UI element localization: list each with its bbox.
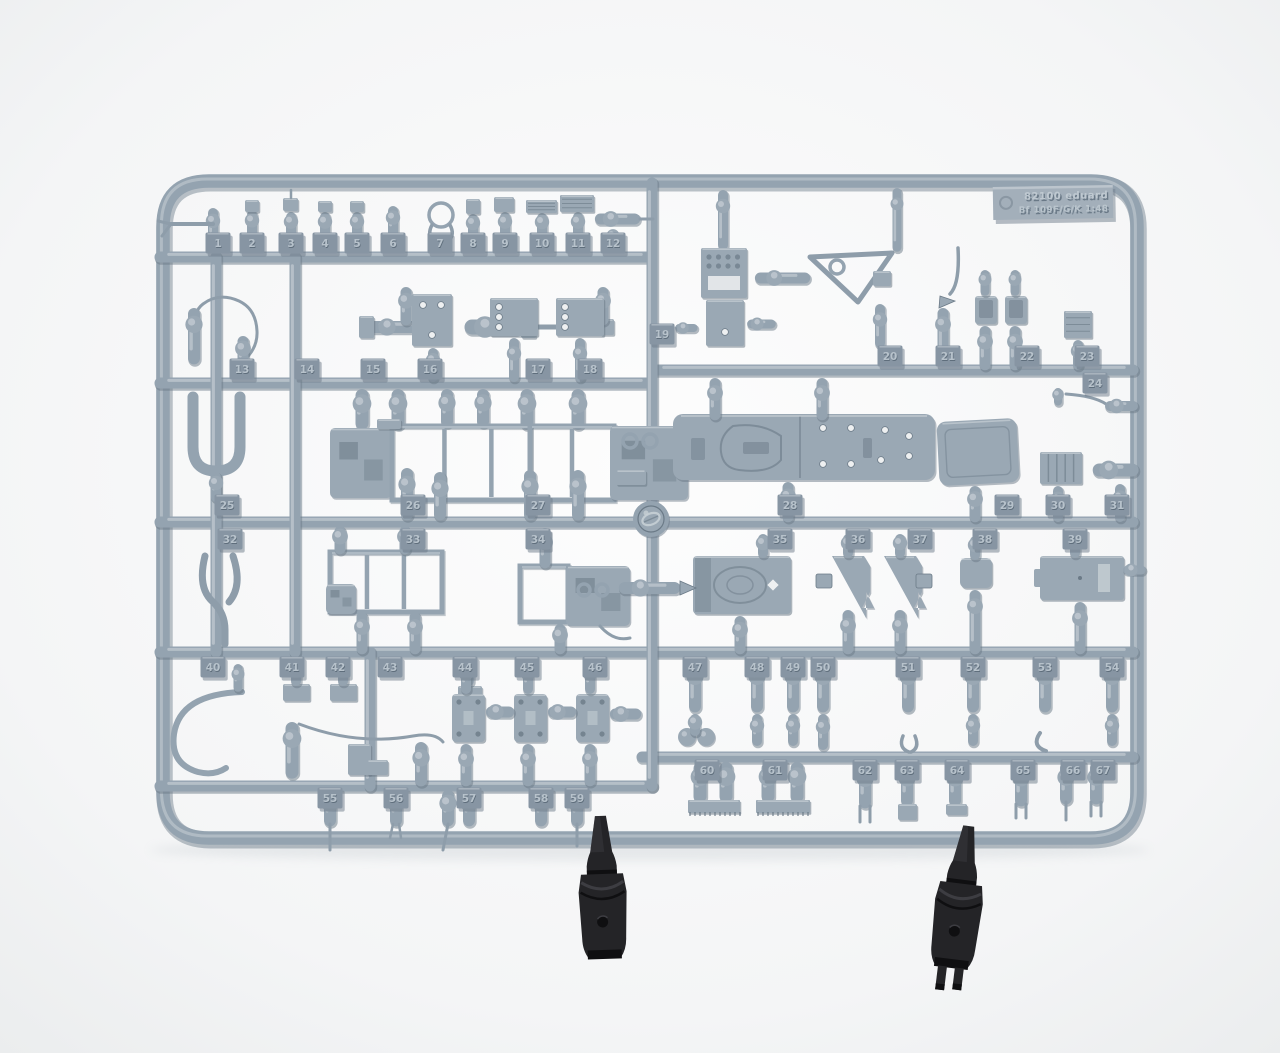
part-number-tab-8: 88 — [461, 233, 488, 257]
part-number: 44 — [458, 662, 473, 674]
part-number-tab-1: 11 — [206, 233, 233, 257]
part-number: 1 — [214, 238, 221, 250]
part-number-tab-34: 3434 — [526, 529, 553, 553]
part-number: 11 — [571, 238, 586, 250]
part-number-tab-56: 5656 — [384, 788, 411, 812]
part-number: 45 — [520, 662, 535, 674]
molded-part — [946, 804, 968, 817]
part-number-tab-45: 4545 — [515, 657, 542, 681]
part-number-tab-42: 4242 — [326, 657, 353, 681]
part-number: 4 — [321, 238, 328, 250]
part-number: 17 — [531, 364, 546, 376]
part-number-tab-35: 3535 — [768, 529, 795, 553]
part-number: 67 — [1096, 765, 1111, 777]
part-number-tab-46: 4646 — [583, 657, 610, 681]
molded-part — [359, 316, 375, 340]
part-number-tab-10: 1010 — [530, 233, 557, 257]
molded-part — [616, 470, 647, 487]
part-number: 34 — [531, 534, 546, 546]
part-number: 42 — [331, 662, 346, 674]
part-number-tab-58: 5858 — [529, 788, 556, 812]
part-number: 9 — [501, 238, 508, 250]
tag-line2: Bf 109F/G/K 1:48 — [1019, 204, 1109, 216]
part-number-tab-57: 5757 — [457, 788, 484, 812]
part-number-tab-39: 3939 — [1063, 529, 1090, 553]
part-number-tab-26: 2626 — [401, 495, 428, 519]
part-number-tab-18: 1818 — [578, 359, 605, 383]
part-number-tab-55: 5555 — [318, 788, 345, 812]
tag-plate: 82100 eduard 82100 eduard Bf 109F/G/K 1:… — [993, 185, 1116, 224]
part-number-tab-65: 6565 — [1011, 760, 1038, 784]
part-number-tab-17: 1717 — [526, 359, 553, 383]
part-number-tab-30: 3030 — [1046, 495, 1073, 519]
part-number: 32 — [223, 534, 238, 546]
part-number: 22 — [1020, 351, 1035, 363]
plate-part — [490, 298, 539, 338]
part-number: 60 — [700, 765, 715, 777]
part-number: 64 — [950, 765, 965, 777]
part-number: 63 — [900, 765, 915, 777]
molded-part — [873, 271, 892, 288]
molded-part — [318, 201, 333, 214]
part-number-tab-36: 3636 — [846, 529, 873, 553]
part-number-tab-15: 1515 — [361, 359, 388, 383]
part-number-tab-21: 2121 — [936, 346, 963, 370]
part-number: 58 — [534, 793, 549, 805]
part-number-tab-66: 6666 — [1061, 760, 1088, 784]
part-number-tab-23: 2323 — [1075, 346, 1102, 370]
part-number-tab-43: 4343 — [378, 657, 405, 681]
molded-part — [245, 200, 260, 214]
part-number-tab-4: 44 — [313, 233, 340, 257]
part-number: 13 — [235, 364, 250, 376]
tag-line1: 82100 eduard — [1024, 190, 1108, 202]
part-number: 61 — [768, 765, 783, 777]
part-number-tab-60: 6060 — [695, 760, 722, 784]
part-number: 54 — [1105, 662, 1120, 674]
hinge-part — [576, 694, 610, 744]
part-number-tab-22: 2222 — [1015, 346, 1042, 370]
radiator-part — [526, 200, 558, 215]
part-number: 26 — [406, 500, 421, 512]
part-number: 29 — [1000, 500, 1015, 512]
part-number: 51 — [901, 662, 916, 674]
part-number: 66 — [1066, 765, 1081, 777]
part-number-tab-9: 99 — [493, 233, 520, 257]
part-number: 40 — [206, 662, 221, 674]
part-number: 7 — [436, 238, 443, 250]
part-number-tab-59: 5959 — [565, 788, 592, 812]
sprue-photo: 1122334455667788991010111112121313141415… — [0, 0, 1280, 1053]
part-number: 36 — [851, 534, 866, 546]
plate-part — [412, 294, 453, 348]
part-number: 46 — [588, 662, 603, 674]
machinery-part — [330, 428, 393, 500]
seat-part — [1005, 296, 1028, 326]
part-number-tab-20: 2020 — [878, 346, 905, 370]
molded-part — [377, 419, 402, 431]
radiator-face-part — [756, 800, 811, 816]
part-number: 30 — [1051, 500, 1066, 512]
part-number-tab-53: 5353 — [1033, 657, 1060, 681]
radiator-part — [560, 195, 595, 214]
part-number-tab-5: 55 — [345, 233, 372, 257]
part-number: 16 — [423, 364, 438, 376]
part-number-tab-27: 2727 — [526, 495, 553, 519]
part-number: 27 — [531, 500, 546, 512]
molded-part — [367, 760, 389, 777]
runner-horizontal — [160, 783, 653, 787]
part-number: 48 — [750, 662, 765, 674]
part-number-tab-31: 3131 — [1105, 495, 1132, 519]
cockpit-floor-part — [673, 414, 937, 482]
part-number: 52 — [966, 662, 981, 674]
part-number-tab-25: 2525 — [215, 495, 242, 519]
part-number: 15 — [366, 364, 381, 376]
molded-part — [466, 199, 481, 216]
part-number-tab-11: 1111 — [566, 233, 593, 257]
part-number: 59 — [570, 793, 585, 805]
part-number: 24 — [1088, 378, 1103, 390]
part-number-tab-29: 2929 — [995, 495, 1022, 519]
part-number-tab-48: 4848 — [745, 657, 772, 681]
molded-part — [898, 804, 918, 822]
part-number: 20 — [883, 351, 898, 363]
part-number-tab-12: 1212 — [601, 233, 628, 257]
radiator-part — [1064, 311, 1093, 340]
part-number: 2 — [248, 238, 255, 250]
part-number-tab-49: 4949 — [781, 657, 808, 681]
hinge-part — [514, 694, 548, 744]
part-number-tab-33: 3333 — [401, 529, 428, 553]
part-number: 8 — [469, 238, 476, 250]
radiator-face-part — [688, 800, 741, 816]
part-number: 62 — [858, 765, 873, 777]
part-number-tab-32: 3232 — [218, 529, 245, 553]
part-number-tab-63: 6363 — [895, 760, 922, 784]
molded-part — [350, 201, 365, 214]
part-number: 50 — [816, 662, 831, 674]
part-number: 33 — [406, 534, 421, 546]
part-number: 21 — [941, 351, 956, 363]
runner-horizontal — [642, 754, 1134, 758]
part-number-tab-37: 3737 — [908, 529, 935, 553]
part-number: 5 — [353, 238, 360, 250]
equipment-box-part — [1034, 556, 1125, 602]
part-number: 56 — [389, 793, 404, 805]
instrument-panel-part — [701, 248, 748, 300]
part-number-tab-61: 6161 — [763, 760, 790, 784]
door-panel-part — [936, 418, 1021, 488]
part-number-tab-14: 1414 — [295, 359, 322, 383]
part-number-tab-2: 22 — [240, 233, 267, 257]
part-number: 38 — [978, 534, 993, 546]
part-number: 10 — [535, 238, 550, 250]
part-number-tab-41: 4141 — [280, 657, 307, 681]
molded-part — [283, 198, 299, 213]
part-number: 14 — [300, 364, 315, 376]
part-number: 53 — [1038, 662, 1053, 674]
seat-part — [975, 296, 998, 326]
part-number-tab-40: 4040 — [201, 657, 228, 681]
part-number-tab-50: 5050 — [811, 657, 838, 681]
ribbed-box-part — [1040, 452, 1083, 486]
part-number-tab-62: 6262 — [853, 760, 880, 784]
runner-vertical — [213, 257, 217, 654]
part-number-tab-16: 1616 — [418, 359, 445, 383]
plate-part — [706, 300, 745, 348]
part-number-tab-64: 6464 — [945, 760, 972, 784]
part-number: 35 — [773, 534, 788, 546]
sprue-photo-canvas: 1122334455667788991010111112121313141415… — [0, 0, 1280, 1053]
part-number-tab-52: 5252 — [961, 657, 988, 681]
part-number-tab-51: 5151 — [896, 657, 923, 681]
molded-part — [494, 197, 515, 214]
hinge-part — [452, 694, 486, 744]
part-number: 37 — [913, 534, 928, 546]
part-number: 19 — [655, 329, 670, 341]
part-number-tab-6: 66 — [381, 233, 408, 257]
part-number: 23 — [1080, 351, 1095, 363]
part-number-tab-54: 5454 — [1100, 657, 1127, 681]
part-number-tab-38: 3838 — [973, 529, 1000, 553]
part-number: 39 — [1068, 534, 1083, 546]
runner-vertical — [292, 257, 296, 654]
part-number-tab-47: 4747 — [683, 657, 710, 681]
part-number: 43 — [383, 662, 398, 674]
part-number: 25 — [220, 500, 235, 512]
part-number: 65 — [1016, 765, 1031, 777]
part-number-tab-19: 1919 — [650, 324, 677, 348]
part-number-tab-28: 2828 — [778, 495, 805, 519]
machinery-part — [326, 584, 357, 616]
part-number-tab-13: 1313 — [230, 359, 257, 383]
molded-part — [960, 558, 993, 590]
part-number: 28 — [783, 500, 798, 512]
part-number: 47 — [688, 662, 703, 674]
part-number: 31 — [1110, 500, 1125, 512]
part-number: 41 — [285, 662, 300, 674]
part-number: 3 — [287, 238, 294, 250]
plate-part — [556, 298, 605, 338]
part-number-tab-67: 6767 — [1091, 760, 1118, 784]
part-number: 18 — [583, 364, 598, 376]
part-number-tab-44: 4444 — [453, 657, 480, 681]
part-number: 57 — [462, 793, 477, 805]
housing-part — [693, 556, 792, 616]
part-number: 55 — [323, 793, 338, 805]
part-number: 49 — [786, 662, 801, 674]
part-number: 6 — [389, 238, 396, 250]
part-number: 12 — [606, 238, 621, 250]
part-number-tab-3: 33 — [279, 233, 306, 257]
part-number-tab-24: 2424 — [1083, 373, 1110, 397]
part-number-tab-7: 77 — [428, 233, 455, 257]
